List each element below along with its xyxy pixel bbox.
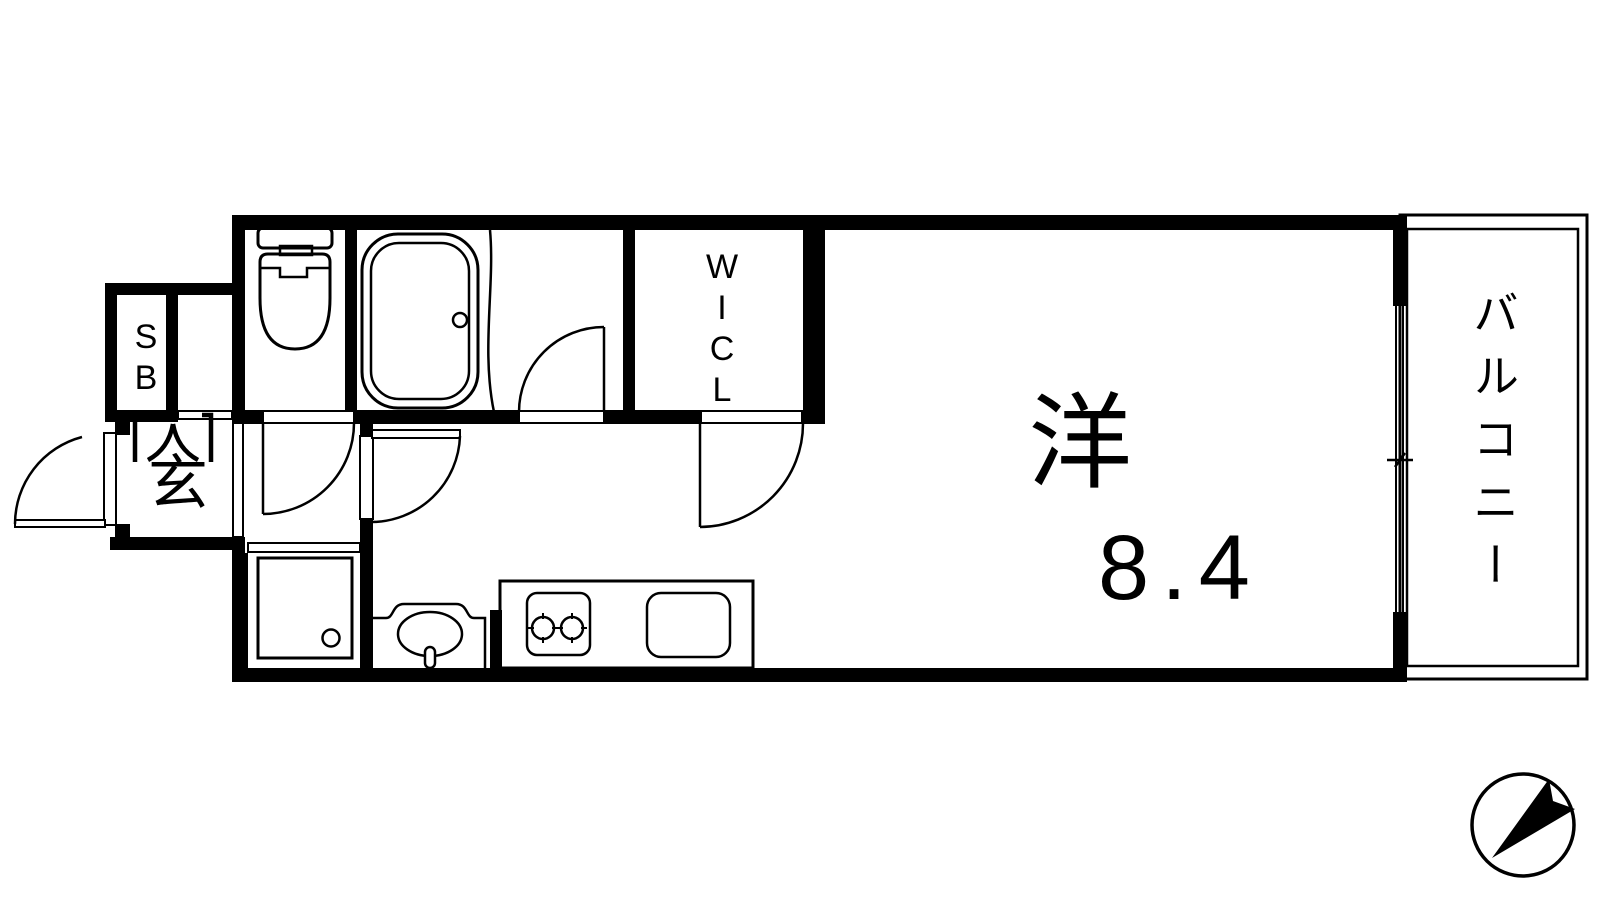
wall-entrance-bottom (110, 537, 233, 550)
washing-machine-pan (258, 558, 352, 658)
wall-shoebox-left (105, 283, 117, 422)
main-room-size-label: 8.4 (1080, 520, 1280, 617)
wall-band-d (802, 410, 825, 424)
bathtub-drain (453, 313, 467, 327)
compass (1472, 774, 1575, 876)
wall-kitchen-door-bottom (360, 519, 373, 682)
balcony-label: バルコニー (1461, 276, 1517, 616)
wall-left-upper (232, 215, 245, 424)
wall-bath-wicl (623, 228, 635, 424)
burner-right (561, 617, 583, 639)
kitchen-sink (647, 593, 730, 657)
basin-faucet (425, 647, 435, 668)
wall-bottom (232, 668, 1400, 682)
bath-door-arc (519, 327, 604, 412)
wall-band-a (232, 410, 263, 424)
washer-threshold (248, 543, 360, 552)
stove-unit (527, 593, 590, 655)
wicl-door-arc (700, 423, 803, 527)
entrance-step-edge (233, 423, 243, 537)
bath-door-threshold (519, 411, 604, 423)
wall-top (232, 215, 1407, 230)
kitchen-door-arc (371, 436, 460, 522)
kitchen-counter (500, 581, 753, 668)
floor-plan: SB 玄 WICL 洋 8.4 バルコニー (0, 0, 1600, 900)
wash-basin (372, 604, 485, 668)
wall-wicl-right (803, 228, 825, 424)
entry-door-frame (104, 433, 116, 525)
entry-door-arc (15, 437, 82, 524)
toilet-seat-line (260, 268, 330, 277)
wall-toilet-bath (345, 228, 357, 424)
entrance-bracket-left (135, 415, 144, 462)
wicl-door-threshold (701, 411, 802, 423)
entrance-label: 玄 (144, 452, 212, 515)
wall-shoebox-top (105, 283, 233, 295)
toilet-door-threshold (263, 411, 354, 423)
main-room-name-label: 洋 (1024, 390, 1136, 499)
wall-shoebox-divider (166, 295, 178, 410)
entry-door-leaf (15, 520, 105, 527)
kitchen-door-leaf (372, 430, 460, 438)
wall-band-c (604, 410, 701, 424)
kitchen-door-jamb (360, 436, 373, 519)
wall-entrance-left-upper (115, 421, 130, 435)
shoe-box-label: SB (123, 314, 163, 404)
bathtub-fixture (362, 230, 494, 412)
bath-partition-curve (488, 230, 494, 412)
walk-in-closet-label: WICL (699, 248, 739, 408)
floor-plan-drawing (0, 0, 1600, 900)
toilet-fixture (258, 228, 332, 349)
bathtub-outer (362, 234, 478, 408)
toilet-door-arc (263, 423, 354, 514)
wall-washer-left (235, 553, 248, 682)
burner-left (532, 617, 554, 639)
washer-drain (323, 630, 340, 647)
